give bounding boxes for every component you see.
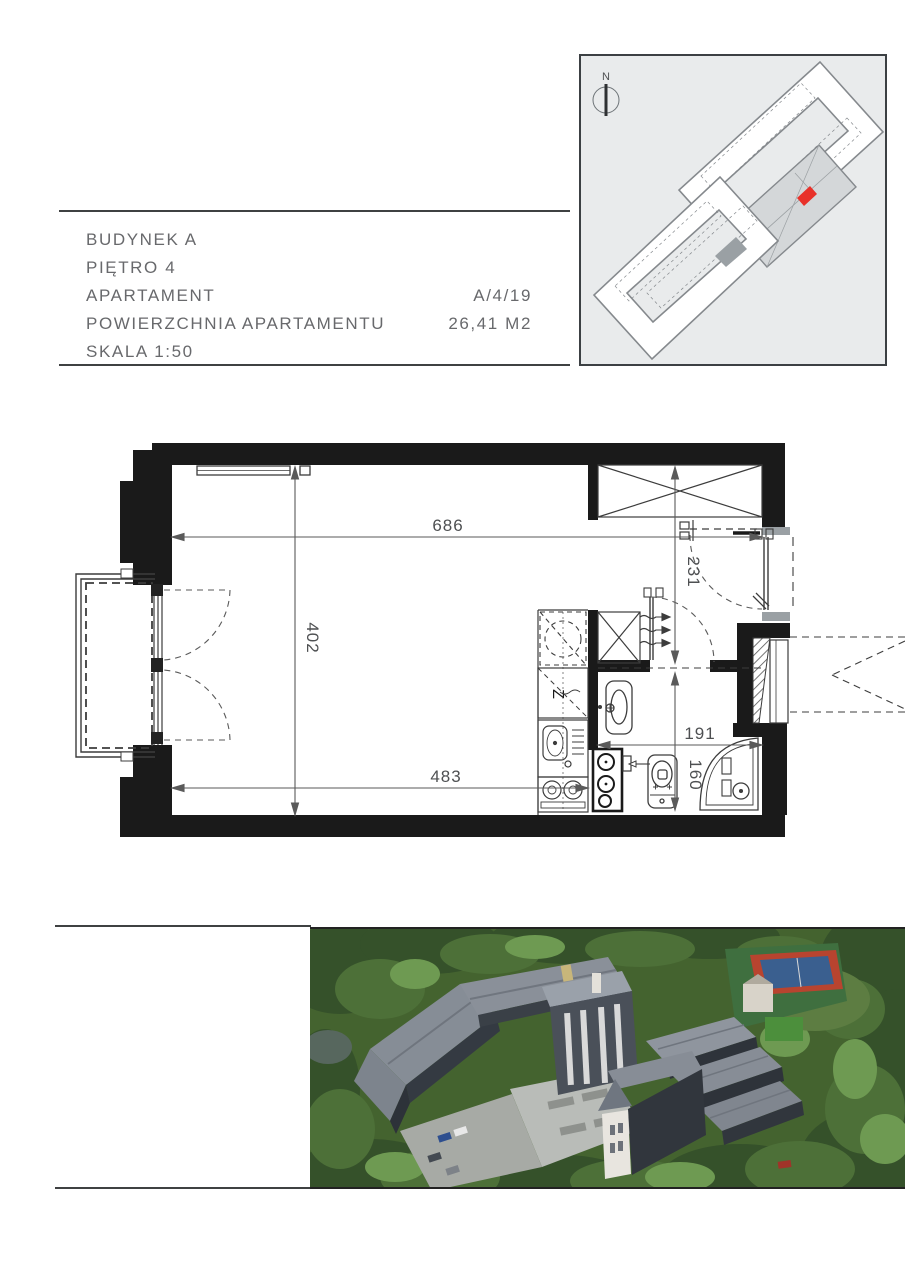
white-outbuilding <box>743 984 773 1012</box>
area-label: POWIERZCHNIA APARTAMENTU <box>86 310 385 338</box>
info-row-area: POWIERZCHNIA APARTAMENTU 26,41 M2 <box>86 310 532 338</box>
shaft <box>598 612 640 663</box>
building-label: BUDYNEK A <box>86 226 198 254</box>
info-row-scale: SKALA 1:50 <box>86 338 532 366</box>
dimension-lines <box>172 467 762 815</box>
apartment-label: APARTAMENT <box>86 282 215 310</box>
heater-arrows-icon <box>640 614 670 647</box>
balcony-door <box>121 569 230 761</box>
apartment-number: A/4/19 <box>473 282 532 310</box>
dim-room-height: 402 <box>303 622 322 653</box>
plumbing-riser <box>593 749 650 811</box>
floor-label: PIĘTRO 4 <box>86 254 176 282</box>
dim-room-width: 483 <box>430 767 461 786</box>
info-row-floor: PIĘTRO 4 <box>86 254 532 282</box>
door-closer-symbol <box>753 593 769 609</box>
washbasin <box>599 681 632 734</box>
kitchen: Z <box>538 610 588 815</box>
dim-hall-depth: 231 <box>684 556 703 587</box>
divider-top <box>59 210 570 212</box>
north-label: N <box>602 71 610 83</box>
wardrobe <box>598 465 762 517</box>
scale-label: SKALA 1:50 <box>86 338 194 366</box>
balcony <box>76 574 155 757</box>
corridor-cabinet-dashed <box>790 637 905 712</box>
apartment-info-block: BUDYNEK A PIĘTRO 4 APARTAMENT A/4/19 POW… <box>86 226 532 366</box>
photo-top-rule <box>55 925 311 927</box>
dishwasher: Z <box>538 668 588 718</box>
thermostat-symbol <box>300 466 310 475</box>
entry-threshold-bottom <box>762 612 790 621</box>
aerial-photo <box>310 927 905 1189</box>
floor-plan-drawing: Z <box>0 440 905 845</box>
site-plan-drawing: N <box>581 56 885 364</box>
area-value: 26,41 M2 <box>448 310 532 338</box>
info-row-apartment: APARTAMENT A/4/19 <box>86 282 532 310</box>
flyer-page: BUDYNEK A PIĘTRO 4 APARTAMENT A/4/19 POW… <box>0 0 905 1280</box>
photo-bottom-rule <box>55 1187 311 1189</box>
dim-overall-width: 686 <box>432 516 463 535</box>
hall-opening-line <box>680 520 760 541</box>
site-plan-box: N <box>579 54 887 366</box>
dim-bath-depth: 160 <box>686 759 705 790</box>
playground <box>765 1017 803 1041</box>
entry-door <box>690 529 793 610</box>
north-compass-icon: N <box>593 71 619 116</box>
balcony-door-swing-arcs <box>164 590 230 740</box>
door-stop-notch <box>650 662 656 672</box>
dim-bath-width: 191 <box>684 724 715 743</box>
aerial-photo-illustration <box>310 929 905 1189</box>
info-row-building: BUDYNEK A <box>86 226 532 254</box>
